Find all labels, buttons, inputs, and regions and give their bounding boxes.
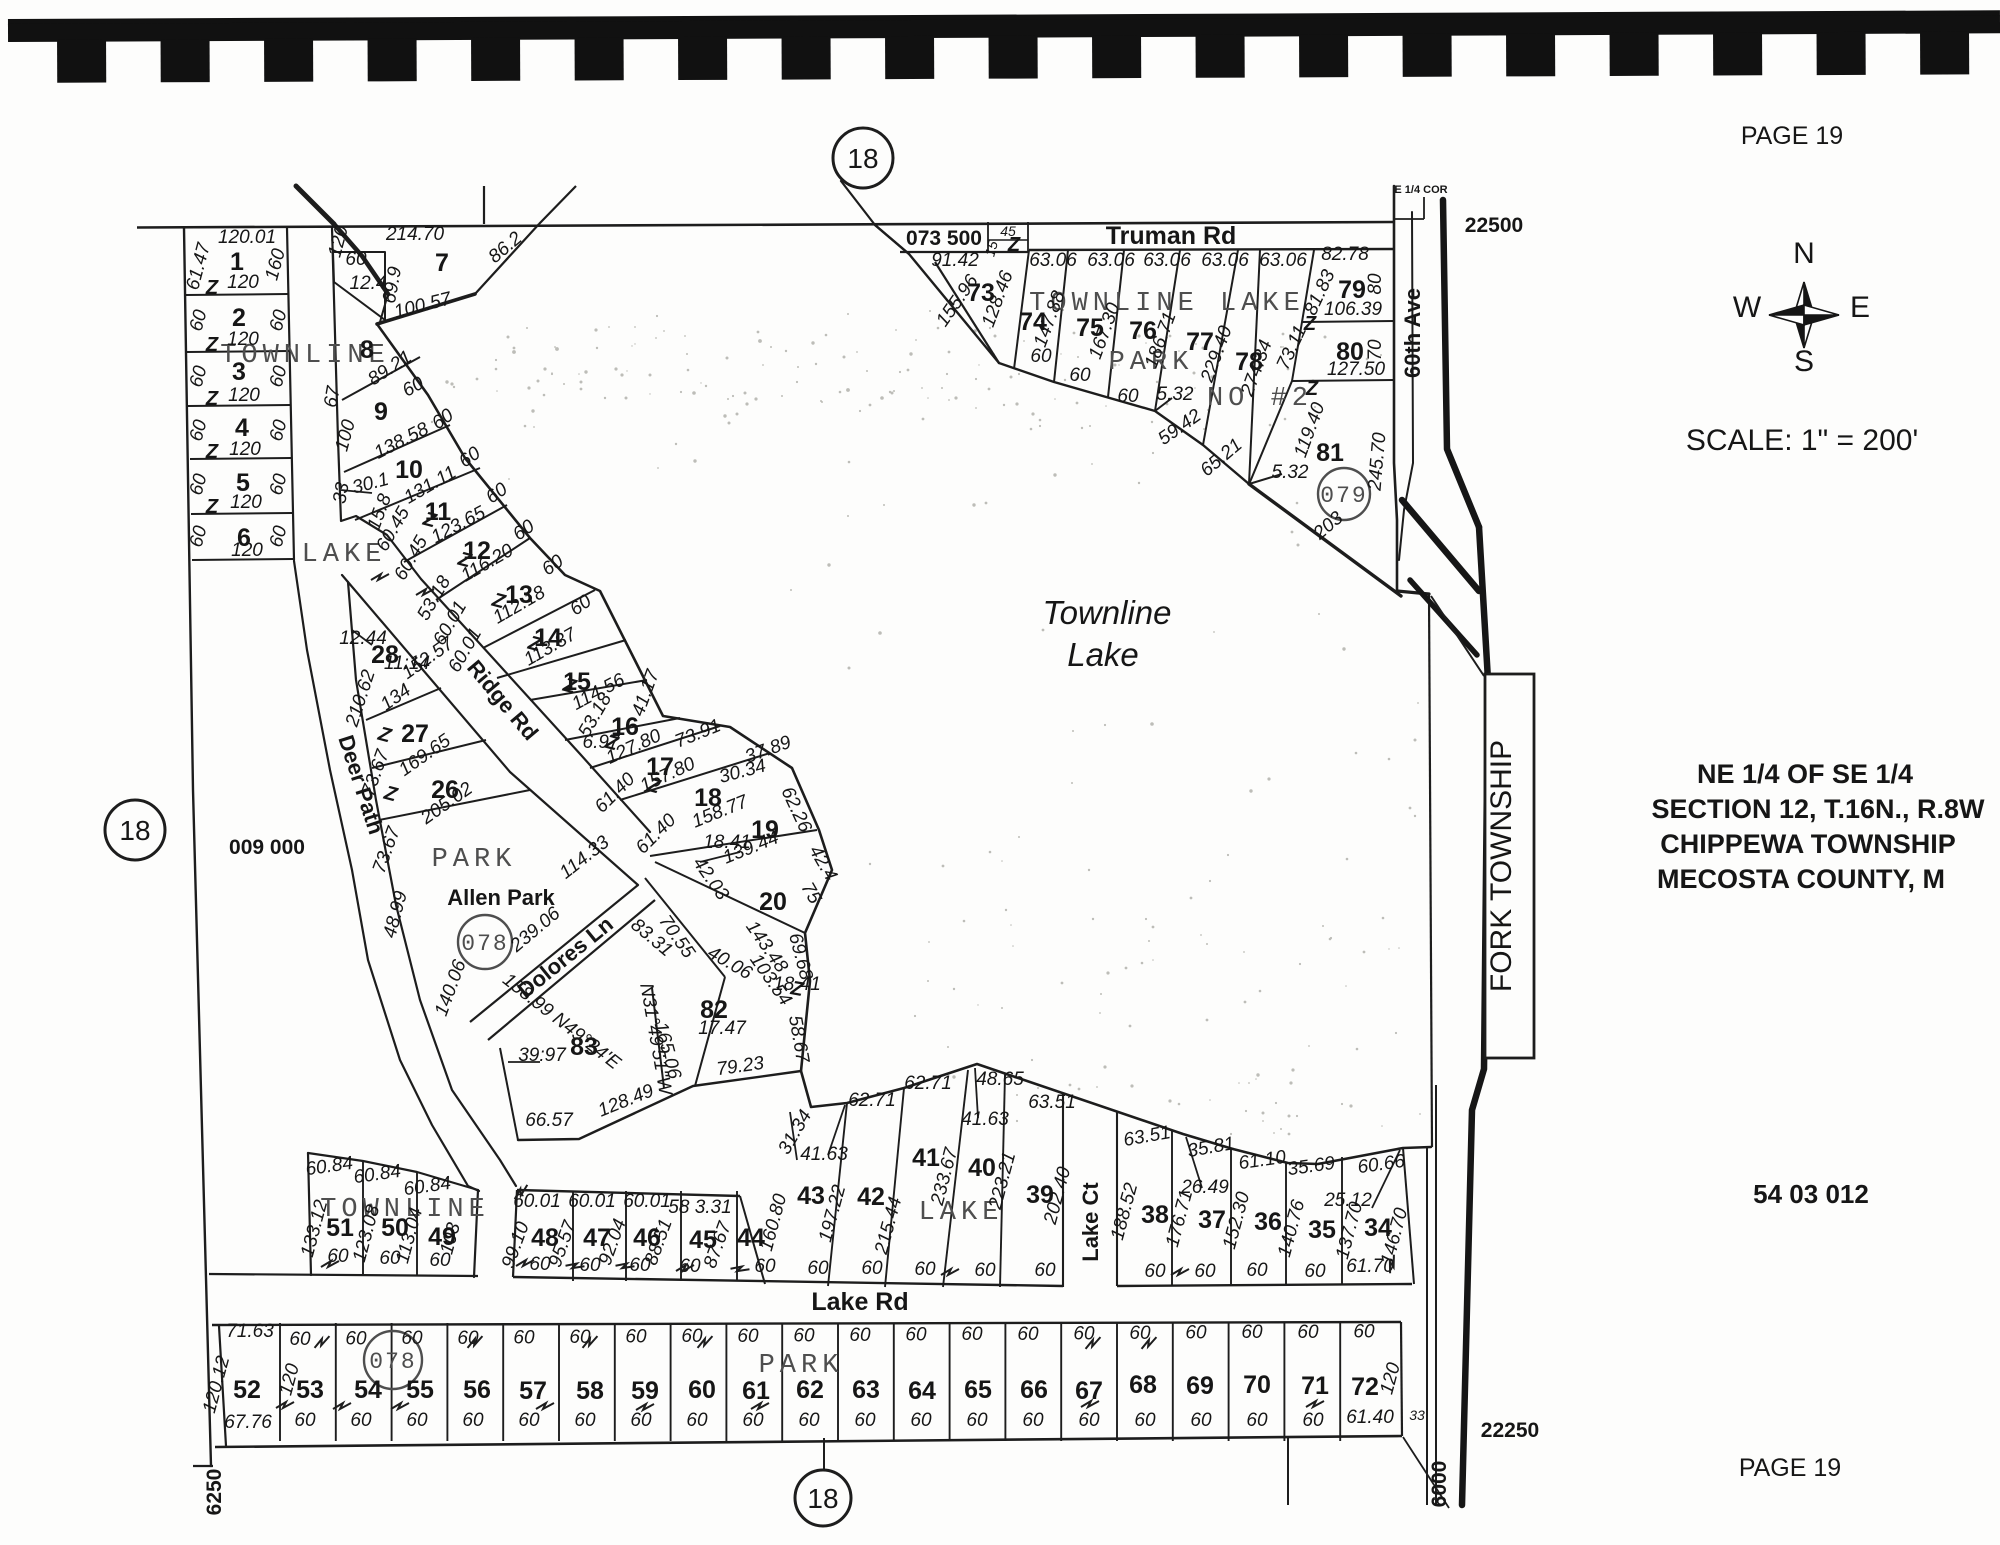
svg-text:57: 57 <box>519 1377 547 1405</box>
svg-text:120: 120 <box>227 272 259 293</box>
svg-text:Townline: Townline <box>1042 594 1171 631</box>
svg-text:66: 66 <box>1020 1376 1048 1404</box>
svg-text:63.51: 63.51 <box>1028 1092 1076 1113</box>
svg-text:60: 60 <box>688 1376 716 1404</box>
svg-text:60: 60 <box>1246 1410 1268 1431</box>
svg-text:60: 60 <box>406 1410 428 1431</box>
svg-text:61.40: 61.40 <box>1346 1407 1394 1428</box>
svg-text:33: 33 <box>1409 1407 1425 1423</box>
svg-text:64: 64 <box>908 1377 936 1405</box>
svg-text:60: 60 <box>1030 346 1052 367</box>
svg-text:FORK TOWNSHIP: FORK TOWNSHIP <box>1485 740 1518 992</box>
svg-text:PAGE 19: PAGE 19 <box>1739 1454 1841 1482</box>
svg-text:SECTION 12, T.16N., R.8W: SECTION 12, T.16N., R.8W <box>1651 794 1985 824</box>
svg-text:60: 60 <box>579 1255 601 1276</box>
svg-text:60: 60 <box>518 1410 540 1431</box>
svg-text:60: 60 <box>1194 1261 1216 1282</box>
svg-text:6250: 6250 <box>203 1469 226 1516</box>
svg-text:22500: 22500 <box>1465 214 1523 237</box>
svg-text:58 3.31: 58 3.31 <box>668 1197 731 1218</box>
svg-text:60: 60 <box>854 1410 876 1431</box>
svg-text:41.63: 41.63 <box>800 1144 848 1165</box>
svg-text:91.42: 91.42 <box>931 250 979 271</box>
svg-text:120: 120 <box>229 439 261 460</box>
svg-text:078: 078 <box>369 1349 416 1375</box>
svg-text:SCALE: 1" = 200': SCALE: 1" = 200' <box>1686 424 1918 457</box>
svg-text:60: 60 <box>966 1410 988 1431</box>
svg-text:60: 60 <box>861 1258 883 1279</box>
svg-text:60: 60 <box>1302 1410 1324 1431</box>
svg-text:20: 20 <box>759 888 787 916</box>
svg-text:120: 120 <box>231 540 263 561</box>
svg-text:214.70: 214.70 <box>385 224 445 245</box>
svg-text:62.71: 62.71 <box>848 1090 896 1111</box>
svg-text:Lake Rd: Lake Rd <box>811 1288 908 1316</box>
svg-text:7: 7 <box>435 249 449 277</box>
svg-text:Truman Rd: Truman Rd <box>1106 222 1237 250</box>
svg-text:9: 9 <box>374 398 388 426</box>
svg-text:60: 60 <box>1144 1261 1166 1282</box>
svg-text:63.06: 63.06 <box>1259 250 1307 271</box>
svg-text:60: 60 <box>1117 386 1139 407</box>
svg-text:60: 60 <box>754 1256 776 1277</box>
svg-text:60: 60 <box>345 249 367 270</box>
svg-text:E: E <box>1850 291 1870 324</box>
svg-text:120.01: 120.01 <box>218 227 276 248</box>
svg-text:60th Ave: 60th Ave <box>1400 288 1425 378</box>
svg-text:5.32: 5.32 <box>1157 384 1194 405</box>
svg-text:22250: 22250 <box>1481 1419 1539 1442</box>
svg-text:54 03 012: 54 03 012 <box>1753 1179 1869 1209</box>
svg-text:Lake: Lake <box>1067 636 1139 673</box>
svg-text:120: 120 <box>230 492 262 513</box>
svg-text:60: 60 <box>1190 1410 1212 1431</box>
svg-text:41.63: 41.63 <box>961 1109 1009 1130</box>
svg-text:3: 3 <box>232 358 246 386</box>
svg-text:Allen Park: Allen Park <box>447 885 555 910</box>
svg-text:60: 60 <box>429 1250 451 1271</box>
svg-text:60: 60 <box>742 1410 764 1431</box>
svg-text:120: 120 <box>228 385 260 406</box>
svg-text:60: 60 <box>974 1260 996 1281</box>
svg-text:60: 60 <box>686 1410 708 1431</box>
svg-text:127.50: 127.50 <box>1327 359 1386 380</box>
svg-text:60: 60 <box>849 1325 871 1346</box>
svg-text:60: 60 <box>513 1327 535 1348</box>
svg-text:60: 60 <box>345 1329 367 1350</box>
svg-text:N: N <box>1793 237 1815 270</box>
svg-text:MECOSTA COUNTY, M: MECOSTA COUNTY, M <box>1657 864 1945 894</box>
svg-text:5.32: 5.32 <box>1272 462 1309 483</box>
svg-text:CHIPPEWA TOWNSHIP: CHIPPEWA TOWNSHIP <box>1660 829 1956 859</box>
svg-text:60.01: 60.01 <box>623 1191 671 1212</box>
svg-text:106.39: 106.39 <box>1324 299 1383 320</box>
svg-text:NE 1/4 OF SE 1/4: NE 1/4 OF SE 1/4 <box>1697 759 1913 789</box>
svg-text:59: 59 <box>631 1377 659 1405</box>
svg-text:120: 120 <box>227 329 259 350</box>
svg-text:18.41: 18.41 <box>703 832 751 853</box>
svg-text:W: W <box>1733 291 1762 324</box>
svg-text:Z: Z <box>205 277 219 299</box>
svg-text:60: 60 <box>401 1328 423 1349</box>
svg-text:70: 70 <box>1365 339 1386 361</box>
svg-text:60: 60 <box>1246 1260 1268 1281</box>
svg-text:81: 81 <box>1316 439 1344 467</box>
svg-text:60: 60 <box>1078 1410 1100 1431</box>
svg-text:58: 58 <box>576 1377 604 1405</box>
svg-text:36: 36 <box>1254 1208 1282 1236</box>
svg-text:6000: 6000 <box>1428 1461 1451 1508</box>
svg-text:63.06: 63.06 <box>1029 250 1077 271</box>
svg-text:67.76: 67.76 <box>224 1412 272 1433</box>
svg-text:63.06: 63.06 <box>1201 250 1249 271</box>
svg-text:60: 60 <box>793 1325 815 1346</box>
svg-text:60: 60 <box>1034 1260 1056 1281</box>
svg-text:72: 72 <box>1351 1373 1379 1401</box>
svg-text:63.06: 63.06 <box>1087 250 1135 271</box>
svg-text:60: 60 <box>625 1327 647 1348</box>
svg-text:Z: Z <box>1305 378 1319 400</box>
svg-text:4: 4 <box>235 414 249 442</box>
svg-text:S: S <box>1794 345 1814 378</box>
svg-text:18: 18 <box>807 1483 838 1514</box>
svg-text:42: 42 <box>857 1183 885 1211</box>
svg-text:60: 60 <box>289 1329 311 1350</box>
svg-text:Z: Z <box>205 388 219 410</box>
svg-text:51: 51 <box>326 1214 354 1242</box>
svg-text:63.06: 63.06 <box>1143 250 1191 271</box>
svg-text:Z: Z <box>205 334 219 356</box>
svg-text:60: 60 <box>379 1248 401 1269</box>
svg-text:68: 68 <box>1129 1371 1157 1399</box>
svg-text:60: 60 <box>1353 1321 1375 1342</box>
svg-text:17.47: 17.47 <box>698 1018 747 1039</box>
svg-text:37: 37 <box>1198 1206 1226 1234</box>
svg-text:63: 63 <box>852 1376 880 1404</box>
svg-text:60: 60 <box>914 1259 936 1280</box>
svg-text:65: 65 <box>964 1376 992 1404</box>
svg-text:82.78: 82.78 <box>1321 244 1369 265</box>
svg-text:60: 60 <box>294 1410 316 1431</box>
svg-text:62.71: 62.71 <box>904 1073 952 1094</box>
svg-text:60: 60 <box>1241 1322 1263 1343</box>
svg-text:PAGE 19: PAGE 19 <box>1741 122 1843 150</box>
svg-text:60: 60 <box>961 1324 983 1345</box>
svg-text:54: 54 <box>354 1376 382 1404</box>
svg-text:18: 18 <box>119 815 150 846</box>
svg-text:33: 33 <box>329 480 353 505</box>
svg-text:60: 60 <box>630 1410 652 1431</box>
svg-text:60: 60 <box>462 1410 484 1431</box>
svg-text:11:14: 11:14 <box>384 653 430 674</box>
svg-text:12.44: 12.44 <box>339 628 387 649</box>
svg-text:25.12: 25.12 <box>1323 1190 1372 1211</box>
svg-text:18: 18 <box>847 143 878 174</box>
svg-text:61.70: 61.70 <box>1346 1256 1394 1277</box>
svg-text:60: 60 <box>798 1410 820 1431</box>
svg-text:60.01: 60.01 <box>568 1191 616 1212</box>
svg-text:Z: Z <box>205 496 219 518</box>
svg-text:Lake Ct: Lake Ct <box>1078 1182 1103 1262</box>
svg-text:60: 60 <box>910 1410 932 1431</box>
svg-text:60: 60 <box>1304 1261 1326 1282</box>
svg-text:60: 60 <box>1022 1410 1044 1431</box>
svg-text:26.49: 26.49 <box>1180 1177 1229 1198</box>
svg-text:8: 8 <box>360 336 374 364</box>
svg-text:60: 60 <box>574 1410 596 1431</box>
svg-text:073 500: 073 500 <box>906 227 982 250</box>
svg-text:PARK: PARK <box>432 845 517 875</box>
svg-text:60: 60 <box>529 1254 551 1275</box>
svg-text:60: 60 <box>905 1325 927 1346</box>
svg-text:E 1/4 COR: E 1/4 COR <box>1394 184 1447 196</box>
svg-text:60: 60 <box>1185 1323 1207 1344</box>
svg-text:55: 55 <box>406 1376 434 1404</box>
svg-text:71: 71 <box>1301 1372 1329 1400</box>
svg-text:61: 61 <box>742 1377 770 1405</box>
svg-text:38: 38 <box>1141 1201 1169 1229</box>
svg-text:Z: Z <box>205 441 219 463</box>
svg-text:66.57: 66.57 <box>525 1110 574 1131</box>
svg-text:60: 60 <box>350 1410 372 1431</box>
svg-text:Z: Z <box>1007 234 1021 256</box>
svg-text:35: 35 <box>1308 1216 1336 1244</box>
svg-text:48.65: 48.65 <box>976 1069 1024 1090</box>
svg-text:2: 2 <box>232 304 246 332</box>
svg-text:70: 70 <box>1243 1371 1271 1399</box>
svg-text:71.63: 71.63 <box>226 1321 274 1342</box>
svg-text:60: 60 <box>737 1326 759 1347</box>
svg-text:60: 60 <box>1017 1324 1039 1345</box>
svg-text:56: 56 <box>463 1376 491 1404</box>
svg-text:009 000: 009 000 <box>229 836 305 859</box>
svg-text:60: 60 <box>569 1327 591 1348</box>
svg-text:Z: Z <box>1303 313 1317 335</box>
svg-text:60: 60 <box>1297 1322 1319 1343</box>
svg-text:60: 60 <box>1134 1410 1156 1431</box>
svg-text:39:97: 39:97 <box>518 1045 567 1066</box>
svg-text:60: 60 <box>807 1258 829 1279</box>
svg-text:078: 078 <box>461 931 508 957</box>
svg-text:80: 80 <box>1365 273 1386 295</box>
svg-text:60: 60 <box>1069 365 1091 386</box>
svg-text:079: 079 <box>1320 483 1367 509</box>
svg-text:43: 43 <box>797 1182 825 1210</box>
svg-text:52: 52 <box>233 1376 261 1404</box>
svg-text:60: 60 <box>629 1255 651 1276</box>
svg-text:62: 62 <box>796 1376 824 1404</box>
svg-text:69: 69 <box>1186 1372 1214 1400</box>
